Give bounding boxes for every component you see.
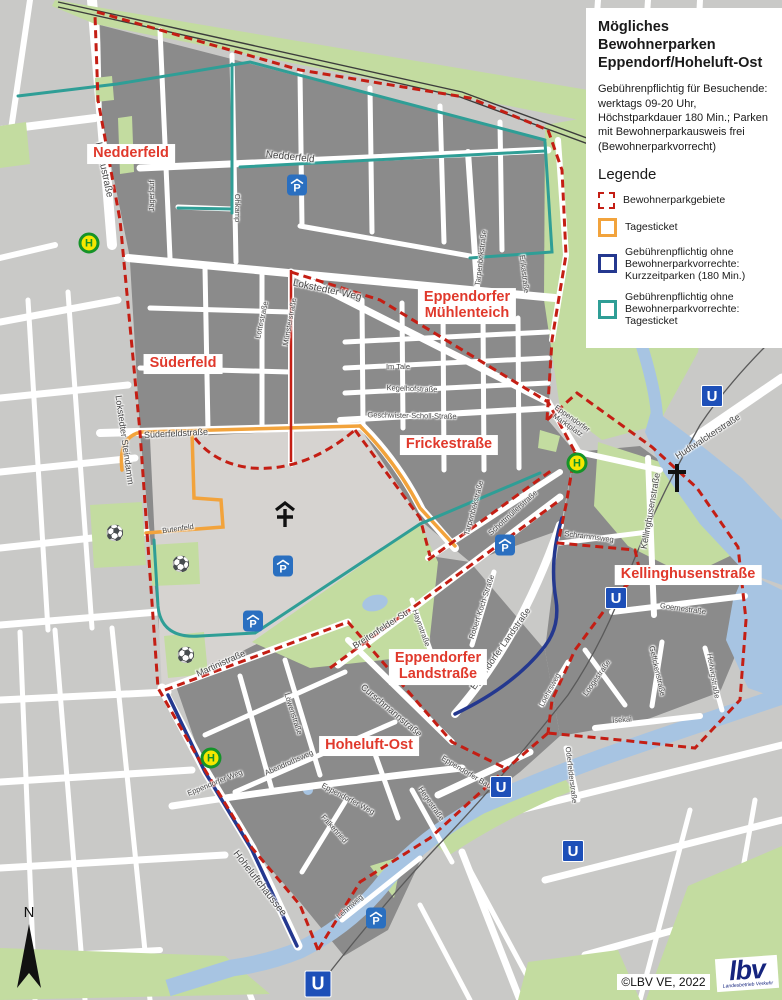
u-station-icon: U <box>562 840 584 862</box>
u-station-icon: U <box>605 587 627 609</box>
soccer-field-icon: ⚽ <box>172 555 191 573</box>
street-label: Im Tale <box>386 363 410 371</box>
soccer-field-icon: ⚽ <box>106 524 125 542</box>
street-label: Ohkamp <box>233 194 241 222</box>
parking-garage-icon: P <box>273 556 293 577</box>
street-label: Kegelhofstraße <box>386 384 437 394</box>
soccer-field-icon: ⚽ <box>177 646 196 664</box>
zone-label: Hoheluft-Ost <box>320 737 418 755</box>
street-label: Jägerlauf <box>148 181 156 212</box>
zone-label: EppendorferLandstraße <box>390 650 486 684</box>
parking-garage-icon: P <box>366 908 386 929</box>
bus-stop-icon: H <box>567 453 588 474</box>
legend-item-label: Gebührenpflichtig ohne Bewohnerparkvorre… <box>625 246 772 282</box>
legend-swatch-icon <box>598 218 617 237</box>
parking-garage-icon: P <box>287 175 307 196</box>
legend-item: Tagesticket <box>598 218 772 237</box>
north-indicator: N <box>14 904 44 992</box>
street-label: Isekai <box>612 715 632 724</box>
map-description: Gebührenpflichtig für Besuchende: werkta… <box>598 82 772 153</box>
zone-label: Frickestraße <box>401 436 497 454</box>
bus-stop-icon: H <box>79 233 100 254</box>
north-arrow-icon <box>14 922 44 992</box>
legend-items: BewohnerparkgebieteTagesticketGebührenpf… <box>598 192 772 327</box>
legend-item: Bewohnerparkgebiete <box>598 192 772 209</box>
legend-panel: Mögliches Bewohnerparken Eppendorf/Hohel… <box>586 8 782 348</box>
chapel-icon <box>272 501 298 529</box>
lbv-logo-text: lbv <box>728 957 766 983</box>
u-station-icon: U <box>305 971 332 998</box>
street-label: Geschwister-Scholl-Straße <box>367 411 456 420</box>
zone-label: Süderfeld <box>145 355 222 373</box>
legend-item-label: Tagesticket <box>625 221 678 233</box>
zone-label: EppendorferMühlenteich <box>419 289 515 323</box>
zone-label: Kellinghusenstraße <box>616 566 761 584</box>
legend-heading: Legende <box>598 166 772 183</box>
map-title: Mögliches Bewohnerparken Eppendorf/Hohel… <box>598 18 772 72</box>
lbv-logo: lbv Landesbetrieb Verkehr <box>715 955 780 992</box>
attribution: ©LBV VE, 2022 lbv Landesbetrieb Verkehr <box>617 957 778 990</box>
legend-swatch-icon <box>598 192 615 209</box>
legend-item: Gebührenpflichtig ohne Bewohnerparkvorre… <box>598 246 772 282</box>
legend-item-label: Bewohnerparkgebiete <box>623 194 725 206</box>
legend-item: Gebührenpflichtig ohne Bewohnerparkvorre… <box>598 291 772 327</box>
zone-label: Nedderfeld <box>88 145 174 163</box>
bus-stop-icon: H <box>201 748 222 769</box>
north-label: N <box>24 904 35 921</box>
parking-garage-icon: P <box>243 611 263 632</box>
u-station-icon: U <box>701 385 723 407</box>
legend-swatch-icon <box>598 254 617 273</box>
parking-garage-icon: P <box>495 535 515 556</box>
church-icon <box>666 463 688 493</box>
map-canvas: Mögliches Bewohnerparken Eppendorf/Hohel… <box>0 0 782 1000</box>
legend-item-label: Gebührenpflichtig ohne Bewohnerparkvorre… <box>625 291 772 327</box>
legend-swatch-icon <box>598 300 617 319</box>
copyright-text: ©LBV VE, 2022 <box>617 974 709 990</box>
u-station-icon: U <box>490 776 512 798</box>
